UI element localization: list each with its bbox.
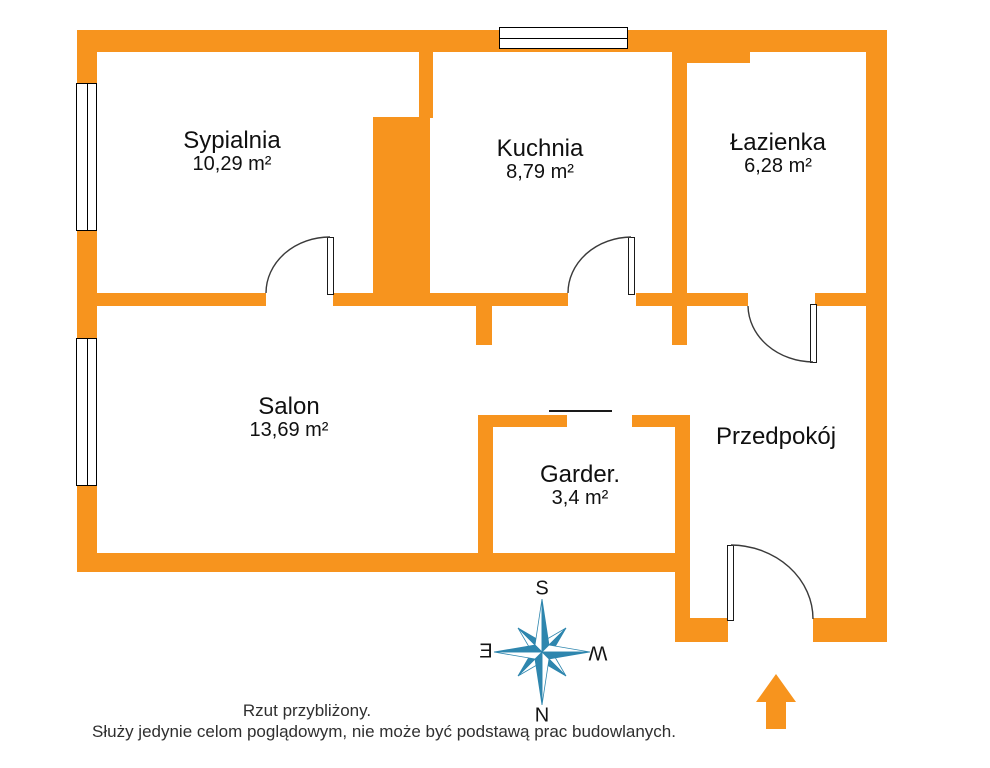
room-name: Sypialnia (183, 128, 280, 153)
room-label-lazienka: Łazienka 6,28 m² (730, 130, 826, 178)
wall-mid-segment-a (95, 293, 266, 306)
wall-wardrobe-top-left (478, 415, 567, 427)
compass-label-east: E (479, 641, 492, 664)
disclaimer-line-1: Rzut przybliżony. (0, 701, 614, 721)
chimney-block (373, 117, 430, 293)
door-arc-entrance (731, 545, 813, 619)
room-name: Przedpokój (716, 424, 836, 449)
wall-hall-left (675, 415, 690, 642)
wall-bathroom-notch (685, 52, 750, 63)
wardrobe-opening-line (549, 410, 612, 412)
room-name: Garder. (540, 462, 620, 487)
wall-kitchen-bathroom (672, 52, 687, 293)
window-mullion (500, 38, 627, 39)
room-area: 13,69 m² (250, 419, 329, 442)
wall-right (866, 30, 887, 642)
compass-rose-icon (494, 599, 590, 705)
room-label-garderoba: Garder. 3,4 m² (540, 462, 620, 510)
door-leaf-bathroom (810, 304, 817, 363)
room-name: Salon (250, 394, 329, 419)
wall-bottom-hall-right (813, 618, 886, 642)
room-area: 10,29 m² (183, 153, 280, 176)
disclaimer-line-2: Służy jedynie celom poglądowym, nie może… (0, 722, 768, 742)
wall-wardrobe-left (478, 415, 493, 553)
window-bedroom (76, 83, 97, 231)
door-arc-kitchen (568, 237, 631, 293)
wall-bedroom-kitchen (419, 52, 433, 118)
room-area: 6,28 m² (730, 155, 826, 178)
door-arc-bathroom (748, 306, 813, 362)
wall-bottom-salon (77, 553, 690, 572)
room-label-przedpokoj: Przedpokój (716, 424, 836, 449)
room-name: Kuchnia (497, 136, 584, 161)
door-leaf-bedroom (327, 237, 334, 295)
wall-stub-kitchen-hall (672, 306, 687, 345)
room-area: 8,79 m² (497, 161, 584, 184)
window-mullion (87, 339, 88, 485)
window-kitchen (499, 27, 628, 49)
door-leaf-kitchen (628, 237, 635, 295)
window-mullion (87, 84, 88, 230)
plan-overlay (0, 0, 990, 768)
wall-mid-segment-d (815, 293, 886, 306)
room-area: 3,4 m² (540, 487, 620, 510)
wall-mid-segment-c (636, 293, 748, 306)
room-label-kuchnia: Kuchnia 8,79 m² (497, 136, 584, 184)
wall-top (77, 30, 886, 52)
window-salon (76, 338, 97, 486)
room-label-sypialnia: Sypialnia 10,29 m² (183, 128, 280, 176)
room-label-salon: Salon 13,69 m² (250, 394, 329, 442)
floor-plan: Sypialnia 10,29 m² Kuchnia 8,79 m² Łazie… (0, 0, 990, 768)
door-arc-bedroom (266, 237, 330, 293)
wall-mid-segment-b (333, 293, 568, 306)
compass-label-west: W (589, 641, 608, 664)
door-leaf-entrance (727, 545, 734, 621)
entrance-arrow-icon (756, 674, 796, 729)
wall-stub-salon (476, 306, 492, 345)
room-name: Łazienka (730, 130, 826, 155)
compass-label-south: S (535, 578, 548, 601)
